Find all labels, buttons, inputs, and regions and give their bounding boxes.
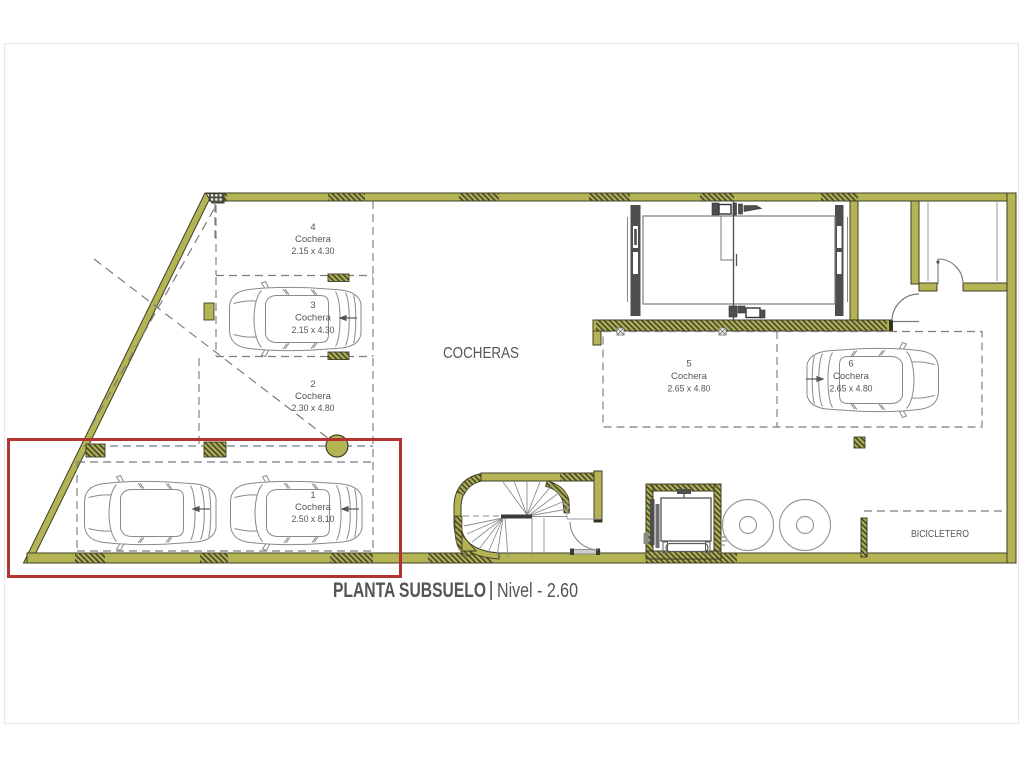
- svg-text:5: 5: [686, 359, 691, 370]
- svg-text:Cochera: Cochera: [671, 371, 708, 382]
- svg-text:Cochera: Cochera: [833, 371, 870, 382]
- svg-text:2.30 x 4.80: 2.30 x 4.80: [292, 403, 335, 414]
- svg-text:6: 6: [848, 359, 853, 370]
- svg-text:Cochera: Cochera: [295, 234, 332, 245]
- svg-text:BICICLETERO: BICICLETERO: [911, 529, 969, 540]
- svg-text:Cochera: Cochera: [295, 391, 332, 402]
- svg-text:Cochera: Cochera: [295, 502, 332, 513]
- svg-text:COCHERAS: COCHERAS: [443, 345, 519, 362]
- svg-text:2.50 x 8.10: 2.50 x 8.10: [292, 514, 335, 525]
- svg-text:Cochera: Cochera: [295, 313, 332, 324]
- svg-text:2.65 x 4.80: 2.65 x 4.80: [668, 384, 711, 395]
- svg-text:3: 3: [310, 300, 315, 311]
- svg-text:|: |: [489, 579, 494, 601]
- svg-text:2.65 x 4.80: 2.65 x 4.80: [830, 384, 873, 395]
- svg-text:2.15 x 4.30: 2.15 x 4.30: [292, 325, 335, 336]
- svg-text:2: 2: [310, 379, 315, 390]
- svg-text:Nivel - 2.60: Nivel - 2.60: [497, 580, 578, 602]
- svg-text:PLANTA SUBSUELO: PLANTA SUBSUELO: [333, 579, 486, 602]
- svg-text:4: 4: [310, 222, 315, 233]
- svg-text:1: 1: [310, 490, 315, 501]
- svg-text:2.15 x 4.30: 2.15 x 4.30: [292, 246, 335, 257]
